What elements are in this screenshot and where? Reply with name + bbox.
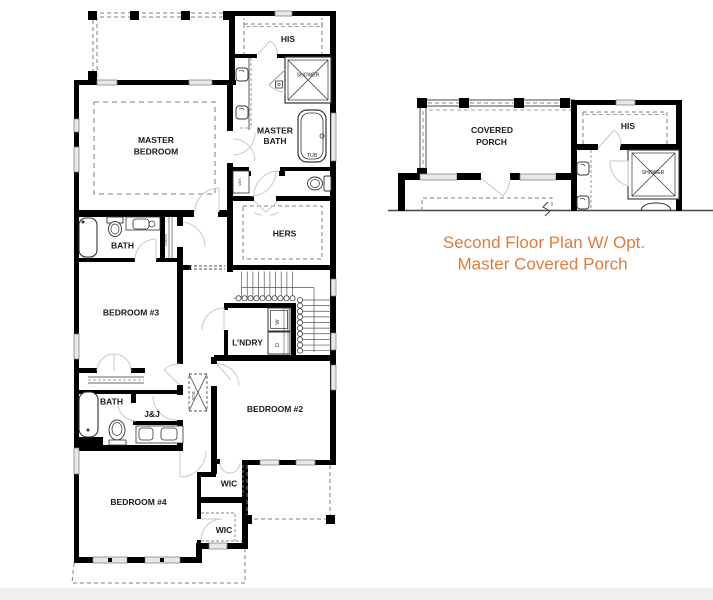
svg-text:Master Covered Porch: Master Covered Porch [457, 255, 627, 274]
svg-text:MASTER: MASTER [138, 135, 174, 145]
svg-text:J&J: J&J [144, 409, 160, 419]
svg-text:BATH: BATH [111, 241, 134, 251]
svg-text:HIS: HIS [281, 34, 296, 44]
svg-text:HIS: HIS [621, 121, 636, 131]
svg-text:L’NDRY: L’NDRY [232, 338, 263, 348]
svg-text:BATH: BATH [264, 136, 287, 146]
svg-text:BEDROOM #4: BEDROOM #4 [110, 497, 166, 507]
svg-text:BATH: BATH [100, 397, 123, 407]
svg-text:WIC: WIC [216, 525, 233, 535]
svg-text:PORCH: PORCH [476, 137, 507, 147]
svg-text:BEDROOM #2: BEDROOM #2 [247, 404, 303, 414]
svg-text:LINEN: LINEN [163, 234, 168, 246]
svg-text:D: D [275, 343, 281, 347]
svg-text:SHOWER: SHOWER [642, 170, 665, 176]
svg-text:Second Floor Plan W/ Opt.: Second Floor Plan W/ Opt. [443, 233, 645, 252]
svg-text:SDS: SDS [191, 391, 196, 400]
svg-text:W: W [275, 319, 281, 325]
svg-text:WIC: WIC [221, 479, 238, 489]
svg-text:VAN: VAN [237, 178, 242, 186]
svg-text:SHOWER: SHOWER [297, 73, 320, 79]
svg-text:TUB: TUB [307, 153, 318, 159]
svg-text:MASTER: MASTER [257, 126, 293, 136]
svg-text:BEDROOM: BEDROOM [134, 147, 178, 157]
svg-text:BEDROOM #3: BEDROOM #3 [103, 308, 159, 318]
svg-text:COVERED: COVERED [471, 125, 513, 135]
svg-text:HERS: HERS [273, 229, 297, 239]
